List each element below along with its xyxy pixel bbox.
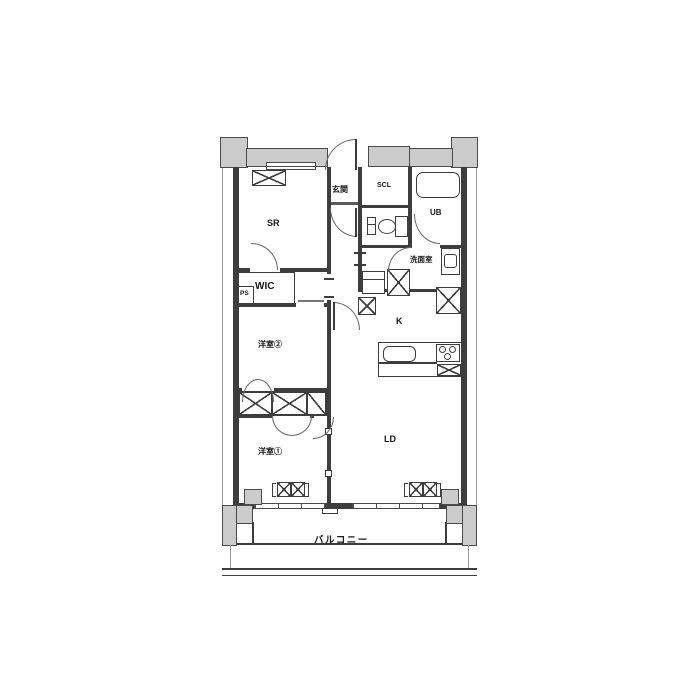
wall-tick — [324, 296, 334, 298]
window-cross-icon — [277, 482, 291, 497]
wall-tick — [354, 252, 366, 254]
fridge-space-icon — [436, 287, 461, 314]
storage-diagonal-icon — [307, 392, 326, 415]
window-bracket-icon — [272, 483, 276, 497]
balcony-side-line-left — [252, 522, 254, 544]
kitchen-sink-icon — [383, 346, 416, 362]
wall-tick — [324, 278, 334, 280]
burner-icon — [439, 346, 446, 353]
room-label-senmenshitsu: 洗面室 — [410, 256, 433, 264]
window-cross-icon — [291, 482, 305, 497]
closet2-door-arc-left — [242, 379, 258, 402]
room-label-scl: SCL — [377, 182, 391, 189]
grill-cabinet-icon — [437, 364, 461, 376]
window-bracket-icon — [404, 483, 408, 497]
ld-door-arc — [333, 302, 360, 330]
window-bottom-right — [352, 503, 440, 509]
room-label-wic: WIC — [255, 282, 274, 292]
room-label-ub: UB — [430, 209, 442, 217]
wall-right — [461, 167, 467, 508]
bathtub-icon — [416, 172, 460, 198]
window-center-post — [322, 508, 338, 514]
entrance-door-arc — [325, 139, 356, 170]
partition-handle — [325, 470, 332, 477]
room-label-yoshitsu2: 洋室② — [258, 341, 282, 349]
room-label-genkan: 玄関 — [332, 186, 348, 194]
closet1-door-arc-left — [272, 416, 292, 436]
room-label-ps: PS — [240, 291, 249, 298]
balcony-pillar-left-b — [222, 505, 237, 546]
concrete-pillar-top-right — [451, 137, 478, 168]
wall-wic-bottom-b — [324, 303, 327, 307]
corner-block-right — [441, 489, 459, 505]
concrete-pillar-top-left — [220, 137, 248, 168]
window-cross-icon — [409, 482, 423, 497]
toilet-tank-icon — [395, 216, 408, 237]
room-label-balcony: バルコニー — [314, 536, 369, 546]
washroom-cabinet-icon — [362, 271, 385, 294]
room-label-sr: SR — [267, 219, 280, 228]
balcony-connector-left — [230, 545, 231, 569]
counter-edge-line — [379, 362, 437, 364]
washroom-door-arc — [388, 247, 411, 271]
washer-pan-icon — [387, 269, 410, 296]
hall-door-arc — [330, 208, 357, 237]
room-label-kitchen: K — [396, 317, 403, 326]
ground-line-lower — [222, 575, 477, 576]
corridor-storage-icon — [358, 297, 376, 315]
window-cross-icon — [423, 482, 437, 497]
ground-line-upper — [222, 568, 477, 570]
hall-door-leaf — [355, 208, 357, 237]
outer-wall-top-right-band — [407, 148, 453, 167]
window-bracket-icon — [305, 483, 309, 497]
sliding-door-track — [298, 300, 324, 302]
burner-icon — [449, 346, 456, 353]
boundary-line-left — [222, 167, 223, 507]
wall-scl-ub — [408, 167, 412, 245]
balcony-pillar-right-b — [462, 505, 477, 546]
sr-hatch-icon — [252, 170, 286, 186]
entrance-door-leaf — [355, 139, 357, 170]
sr-door-arc — [251, 243, 278, 270]
room-label-ld: LD — [384, 435, 396, 444]
closet2-door-arc-right — [258, 379, 274, 402]
burner-icon — [444, 353, 451, 360]
balcony-connector-right — [468, 545, 469, 569]
wall-spine-upper — [327, 167, 331, 274]
entrance-porch-block — [368, 146, 410, 167]
toilet-bowl-icon — [378, 219, 396, 234]
floor-plan: SR 玄関 SCL UB 洗面室 WIC PS 洋室② K LD 洋室① バルコ… — [0, 0, 700, 700]
closet1-door-arc-right — [292, 416, 312, 436]
wall-left — [233, 167, 239, 508]
room-label-yoshitsu1: 洋室① — [258, 448, 282, 456]
wall-scl-toilet — [362, 205, 408, 208]
window-bottom-left — [254, 503, 326, 509]
bath-door-arc — [414, 214, 440, 244]
toilet-shelf-icon — [367, 217, 376, 235]
ld-door-leaf — [333, 302, 335, 330]
corner-block-left — [244, 489, 262, 505]
balcony-side-line-right — [445, 522, 447, 544]
closet-cross-icon — [272, 392, 307, 415]
genkan-step-line — [331, 202, 358, 205]
window-sr-top — [266, 162, 316, 170]
vanity-sink-icon — [444, 254, 457, 268]
wall-tick — [354, 264, 366, 266]
boundary-line-right — [476, 167, 477, 507]
